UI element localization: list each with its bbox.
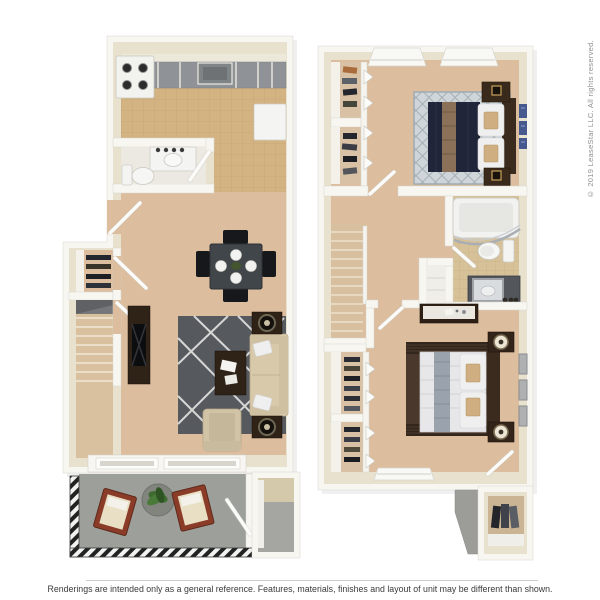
bathroom — [445, 196, 527, 310]
bed1-accent-pillow — [484, 145, 498, 162]
half-bathroom — [113, 138, 214, 193]
floorplan-rendering — [0, 0, 600, 600]
toilet-tank — [122, 165, 132, 185]
bed2-runner — [434, 352, 450, 432]
bath-sink — [164, 154, 182, 167]
bed2-accent-pillow — [466, 364, 480, 382]
armchair — [203, 409, 241, 451]
second-floor-plan — [318, 46, 537, 560]
disclaimer-text: Renderings are intended only as a genera… — [0, 584, 600, 594]
toilet-bowl — [132, 168, 154, 185]
exterior-wall-panel — [455, 490, 480, 554]
place-setting — [216, 261, 227, 272]
stairs-first-floor — [76, 300, 113, 458]
place-setting — [246, 261, 257, 272]
outdoor-storage — [252, 472, 300, 558]
sink-basin — [203, 67, 227, 80]
stairs-second-floor — [331, 224, 367, 338]
lamp — [264, 320, 270, 326]
bedroom1-window — [440, 48, 498, 66]
bathroom-vanity — [468, 276, 520, 306]
sliding-glass-door — [88, 455, 246, 472]
stove — [116, 56, 154, 98]
exterior-storage-closet — [478, 486, 533, 560]
dining-chair-left — [196, 251, 210, 277]
coffee-table — [215, 351, 246, 395]
nightstand — [488, 332, 514, 352]
refrigerator — [254, 104, 286, 140]
end-table-bottom — [252, 416, 282, 438]
storage-door — [258, 480, 264, 548]
footer-divider — [86, 580, 538, 581]
bed1-accent-pillow — [484, 112, 498, 129]
picture-frame — [492, 171, 501, 180]
bedroom1-wall — [324, 186, 368, 196]
kitchen-tile-hall — [214, 140, 286, 198]
place-setting — [231, 273, 242, 284]
nightstand — [484, 168, 510, 186]
dining-chair-right — [262, 251, 276, 277]
nightstand — [482, 82, 510, 102]
copyright-watermark: © 2019 LeaseStar LLC. All rights reserve… — [586, 40, 595, 198]
stair-rail — [363, 226, 367, 304]
dining-chair-top — [223, 230, 248, 244]
bath-wall-top — [113, 138, 214, 147]
bedroom1-wall — [398, 186, 527, 196]
centerpiece — [231, 262, 241, 270]
closet-shelf — [76, 250, 84, 292]
first-floor-plan — [63, 36, 300, 558]
storage-shelf — [488, 534, 524, 546]
toilet-tank — [503, 240, 514, 262]
place-setting — [231, 250, 242, 261]
end-table-top — [252, 312, 282, 334]
bed2-accent-pillow — [466, 398, 480, 416]
lamp — [264, 424, 270, 430]
dining-chair-bottom — [223, 288, 248, 302]
patio — [70, 474, 254, 557]
wall-art-blue — [519, 104, 527, 149]
wall-art-frames — [519, 354, 527, 426]
bedroom1-closets — [331, 62, 373, 186]
bathtub — [453, 198, 520, 244]
closet-wall — [69, 292, 113, 300]
hanging-clothes — [491, 504, 519, 528]
dresser — [420, 304, 478, 323]
bedroom2-closets — [324, 344, 375, 472]
vanity-sink — [481, 286, 495, 296]
sofa — [250, 334, 288, 416]
bedroom1-window — [368, 48, 426, 66]
picture-frame — [492, 86, 501, 95]
floorplan-page: © 2019 LeaseStar LLC. All rights reserve… — [0, 0, 600, 600]
patio-railing-bottom — [70, 548, 254, 557]
nightstand — [488, 422, 514, 442]
patio-railing-left — [70, 476, 79, 557]
bedroom-1 — [414, 82, 527, 186]
